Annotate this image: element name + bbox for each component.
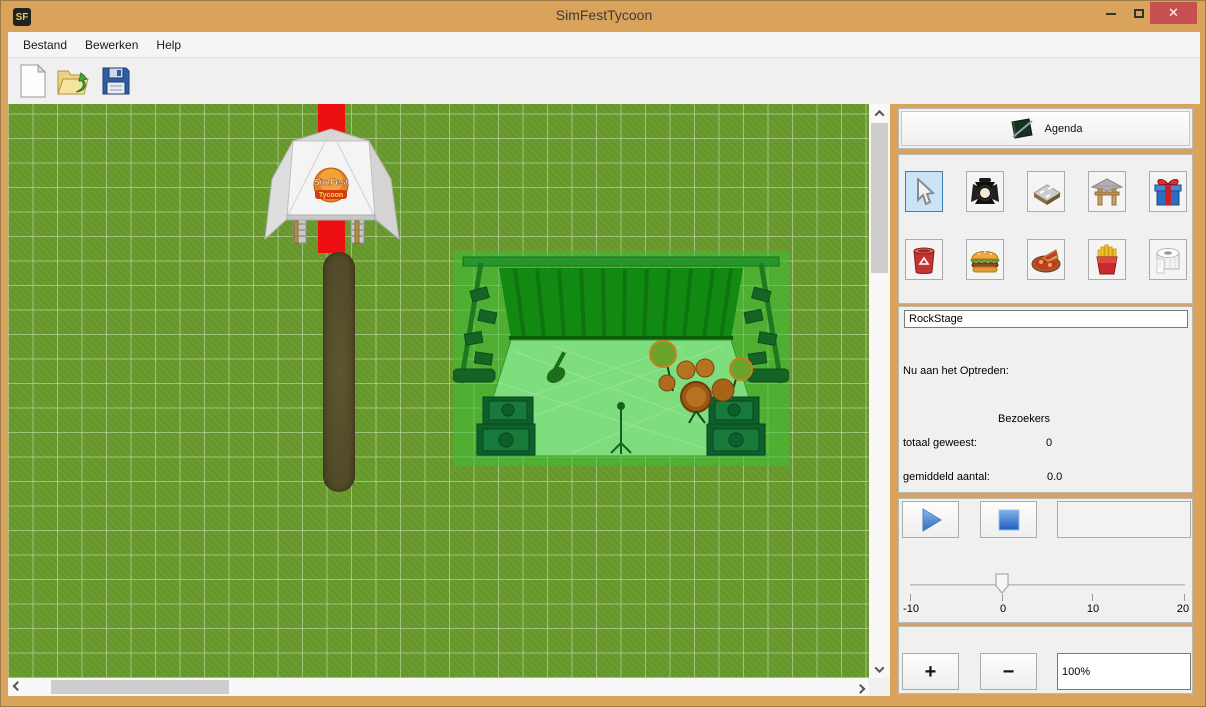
chevron-up-icon [875,109,885,119]
gift-box-icon [1152,176,1184,208]
menu-bewerken[interactable]: Bewerken [76,34,147,56]
pizza-tool-button[interactable] [1027,239,1065,280]
average-visitors-label: gemiddeld aantal: [903,471,990,483]
agenda-book-icon [1009,117,1035,141]
minus-icon: − [1003,662,1015,682]
stop-icon [997,508,1021,532]
chevron-right-icon [855,683,865,693]
trash-can-icon [910,245,938,275]
zoom-in-button[interactable]: + [902,653,959,690]
minimize-icon [1106,13,1116,15]
chevron-down-icon [875,663,885,673]
horizontal-scroll-thumb[interactable] [51,680,229,694]
play-button[interactable] [902,501,959,538]
save-file-button[interactable] [97,62,135,100]
close-button[interactable]: ✕ [1150,2,1197,24]
speaker-stack-right [707,397,765,455]
tick [910,594,911,601]
scroll-down-button[interactable] [869,660,890,678]
total-visitors-value: 0 [1046,437,1052,449]
zoom-group: + − [898,626,1193,694]
fries-tool-button[interactable] [1088,239,1126,280]
close-icon: ✕ [1168,5,1179,21]
agenda-group: Agenda [898,108,1193,149]
svg-text:Tycoon: Tycoon [319,192,343,199]
now-performing-label: Nu aan het Optreden: [903,365,1009,377]
spotlight-icon [970,177,1000,207]
stop-button[interactable] [980,501,1037,538]
maximize-icon [1134,9,1144,18]
open-folder-icon [56,65,90,97]
road-tool-button[interactable] [1027,171,1065,212]
rock-stage-preview[interactable] [453,251,789,466]
scroll-up-button[interactable] [869,104,890,122]
tick [1002,594,1003,601]
burger-icon [969,246,1001,274]
scrollbar-corner [869,678,890,696]
toolbar [8,58,1200,104]
pizza-icon [1030,246,1062,274]
slider-label-ten: 10 [1087,603,1099,615]
tick [1092,594,1093,601]
total-visitors-label: totaal geweest: [903,437,977,449]
speed-slider-track[interactable] [910,584,1185,586]
entrance-gate-icon [1091,177,1123,207]
zoom-level-field[interactable] [1057,653,1191,690]
play-icon [918,507,944,533]
maximize-button[interactable] [1125,3,1152,24]
menu-bar: Bestand Bewerken Help [8,32,1200,58]
scroll-right-button[interactable] [851,678,869,696]
save-floppy-icon [100,65,132,97]
fries-icon [1093,244,1121,276]
select-tool-button[interactable] [905,171,943,212]
tick [1184,594,1185,601]
stage-name-input[interactable] [904,310,1188,328]
extra-action-button[interactable] [1057,501,1191,538]
entrance-tent[interactable]: SimFest Tycoon [263,127,403,245]
agenda-button[interactable]: Agenda [901,111,1190,146]
spotlight-tool-button[interactable] [966,171,1004,212]
trash-tool-button[interactable] [905,239,943,280]
simfest-logo: SimFest Tycoon [313,168,348,202]
title-bar[interactable]: SF SimFestTycoon ✕ [1,1,1206,32]
new-file-button[interactable] [14,62,52,100]
toilet-paper-icon [1153,245,1183,275]
scroll-left-button[interactable] [8,678,26,696]
plus-icon: + [925,662,937,682]
slider-label-min: -10 [903,603,919,615]
gate-tool-button[interactable] [1088,171,1126,212]
tools-group [898,154,1193,304]
window-title: SimFestTycoon [1,7,1206,23]
cursor-arrow-icon [911,178,937,206]
simulation-controls-group: -10 0 10 20 [898,498,1193,623]
stage-info-group: Nu aan het Optreden: Bezoekers totaal ge… [898,306,1193,493]
minimize-button[interactable] [1097,3,1124,24]
app-window: SF SimFestTycoon ✕ Bestand Bewerken Help [0,0,1206,707]
slider-label-max: 20 [1177,603,1189,615]
open-file-button[interactable] [54,62,92,100]
horizontal-scrollbar[interactable] [8,678,869,696]
visitors-header: Bezoekers [899,413,1149,425]
menu-help[interactable]: Help [147,34,190,56]
vertical-scroll-thumb[interactable] [871,123,888,273]
burger-tool-button[interactable] [966,239,1004,280]
menu-bestand[interactable]: Bestand [14,34,76,56]
toilet-paper-tool-button[interactable] [1149,239,1187,280]
new-file-icon [18,64,48,98]
festival-map-canvas[interactable]: SimFest Tycoon [8,104,869,678]
speed-slider-thumb[interactable] [995,573,1010,595]
chevron-left-icon [12,681,22,691]
vertical-scrollbar[interactable] [869,104,890,678]
dirt-path[interactable] [323,252,355,492]
average-visitors-value: 0.0 [1047,471,1062,483]
present-tool-button[interactable] [1149,171,1187,212]
slider-label-zero: 0 [1000,603,1006,615]
svg-text:SimFest: SimFest [313,177,348,187]
road-tile-icon [1030,177,1062,207]
agenda-label: Agenda [1045,123,1083,135]
speaker-stack-left [477,397,535,455]
zoom-out-button[interactable]: − [980,653,1037,690]
